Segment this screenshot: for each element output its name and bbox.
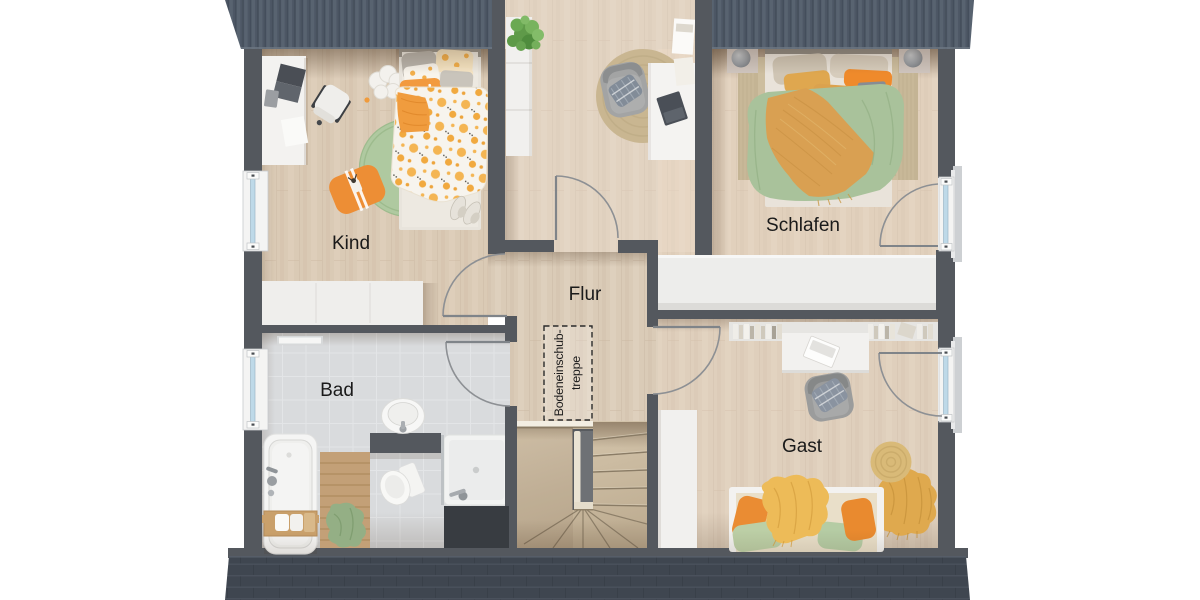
svg-text:Gast: Gast [782,436,823,457]
svg-text:Bodeneinschub-: Bodeneinschub- [552,330,566,417]
svg-text:treppe: treppe [569,356,583,390]
svg-text:Bad: Bad [320,380,354,401]
svg-text:Flur: Flur [569,284,602,305]
svg-text:Schlafen: Schlafen [766,215,840,236]
svg-text:Kind: Kind [332,233,370,254]
